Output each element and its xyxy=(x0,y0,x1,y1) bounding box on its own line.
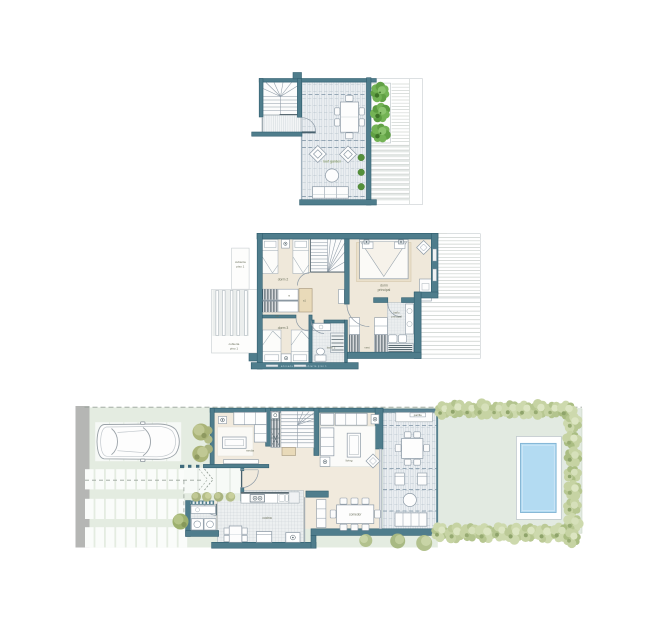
svg-text:baño 2: baño 2 xyxy=(327,346,336,350)
svg-text:cubierta: cubierta xyxy=(235,260,246,264)
svg-text:cocina: cocina xyxy=(262,516,271,520)
svg-text:roof garden: roof garden xyxy=(323,160,341,164)
svg-text:dorm: dorm xyxy=(380,284,388,288)
svg-text:parrilla: parrilla xyxy=(414,413,422,417)
svg-text:vest: vest xyxy=(364,346,369,350)
svg-text:principal: principal xyxy=(378,288,391,292)
svg-text:piso 1: piso 1 xyxy=(236,265,244,269)
svg-text:vd: vd xyxy=(276,314,279,318)
svg-text:dorm 3: dorm 3 xyxy=(278,326,289,330)
svg-text:comedor: comedor xyxy=(349,513,362,517)
svg-text:piso 1: piso 1 xyxy=(230,347,238,351)
svg-text:cubierta: cubierta xyxy=(229,342,240,346)
svg-text:media: media xyxy=(246,449,255,453)
svg-text:principal: principal xyxy=(391,315,402,319)
svg-text:dorm 2: dorm 2 xyxy=(278,278,289,282)
svg-text:living: living xyxy=(346,459,353,463)
svg-text:m: m xyxy=(288,295,290,298)
